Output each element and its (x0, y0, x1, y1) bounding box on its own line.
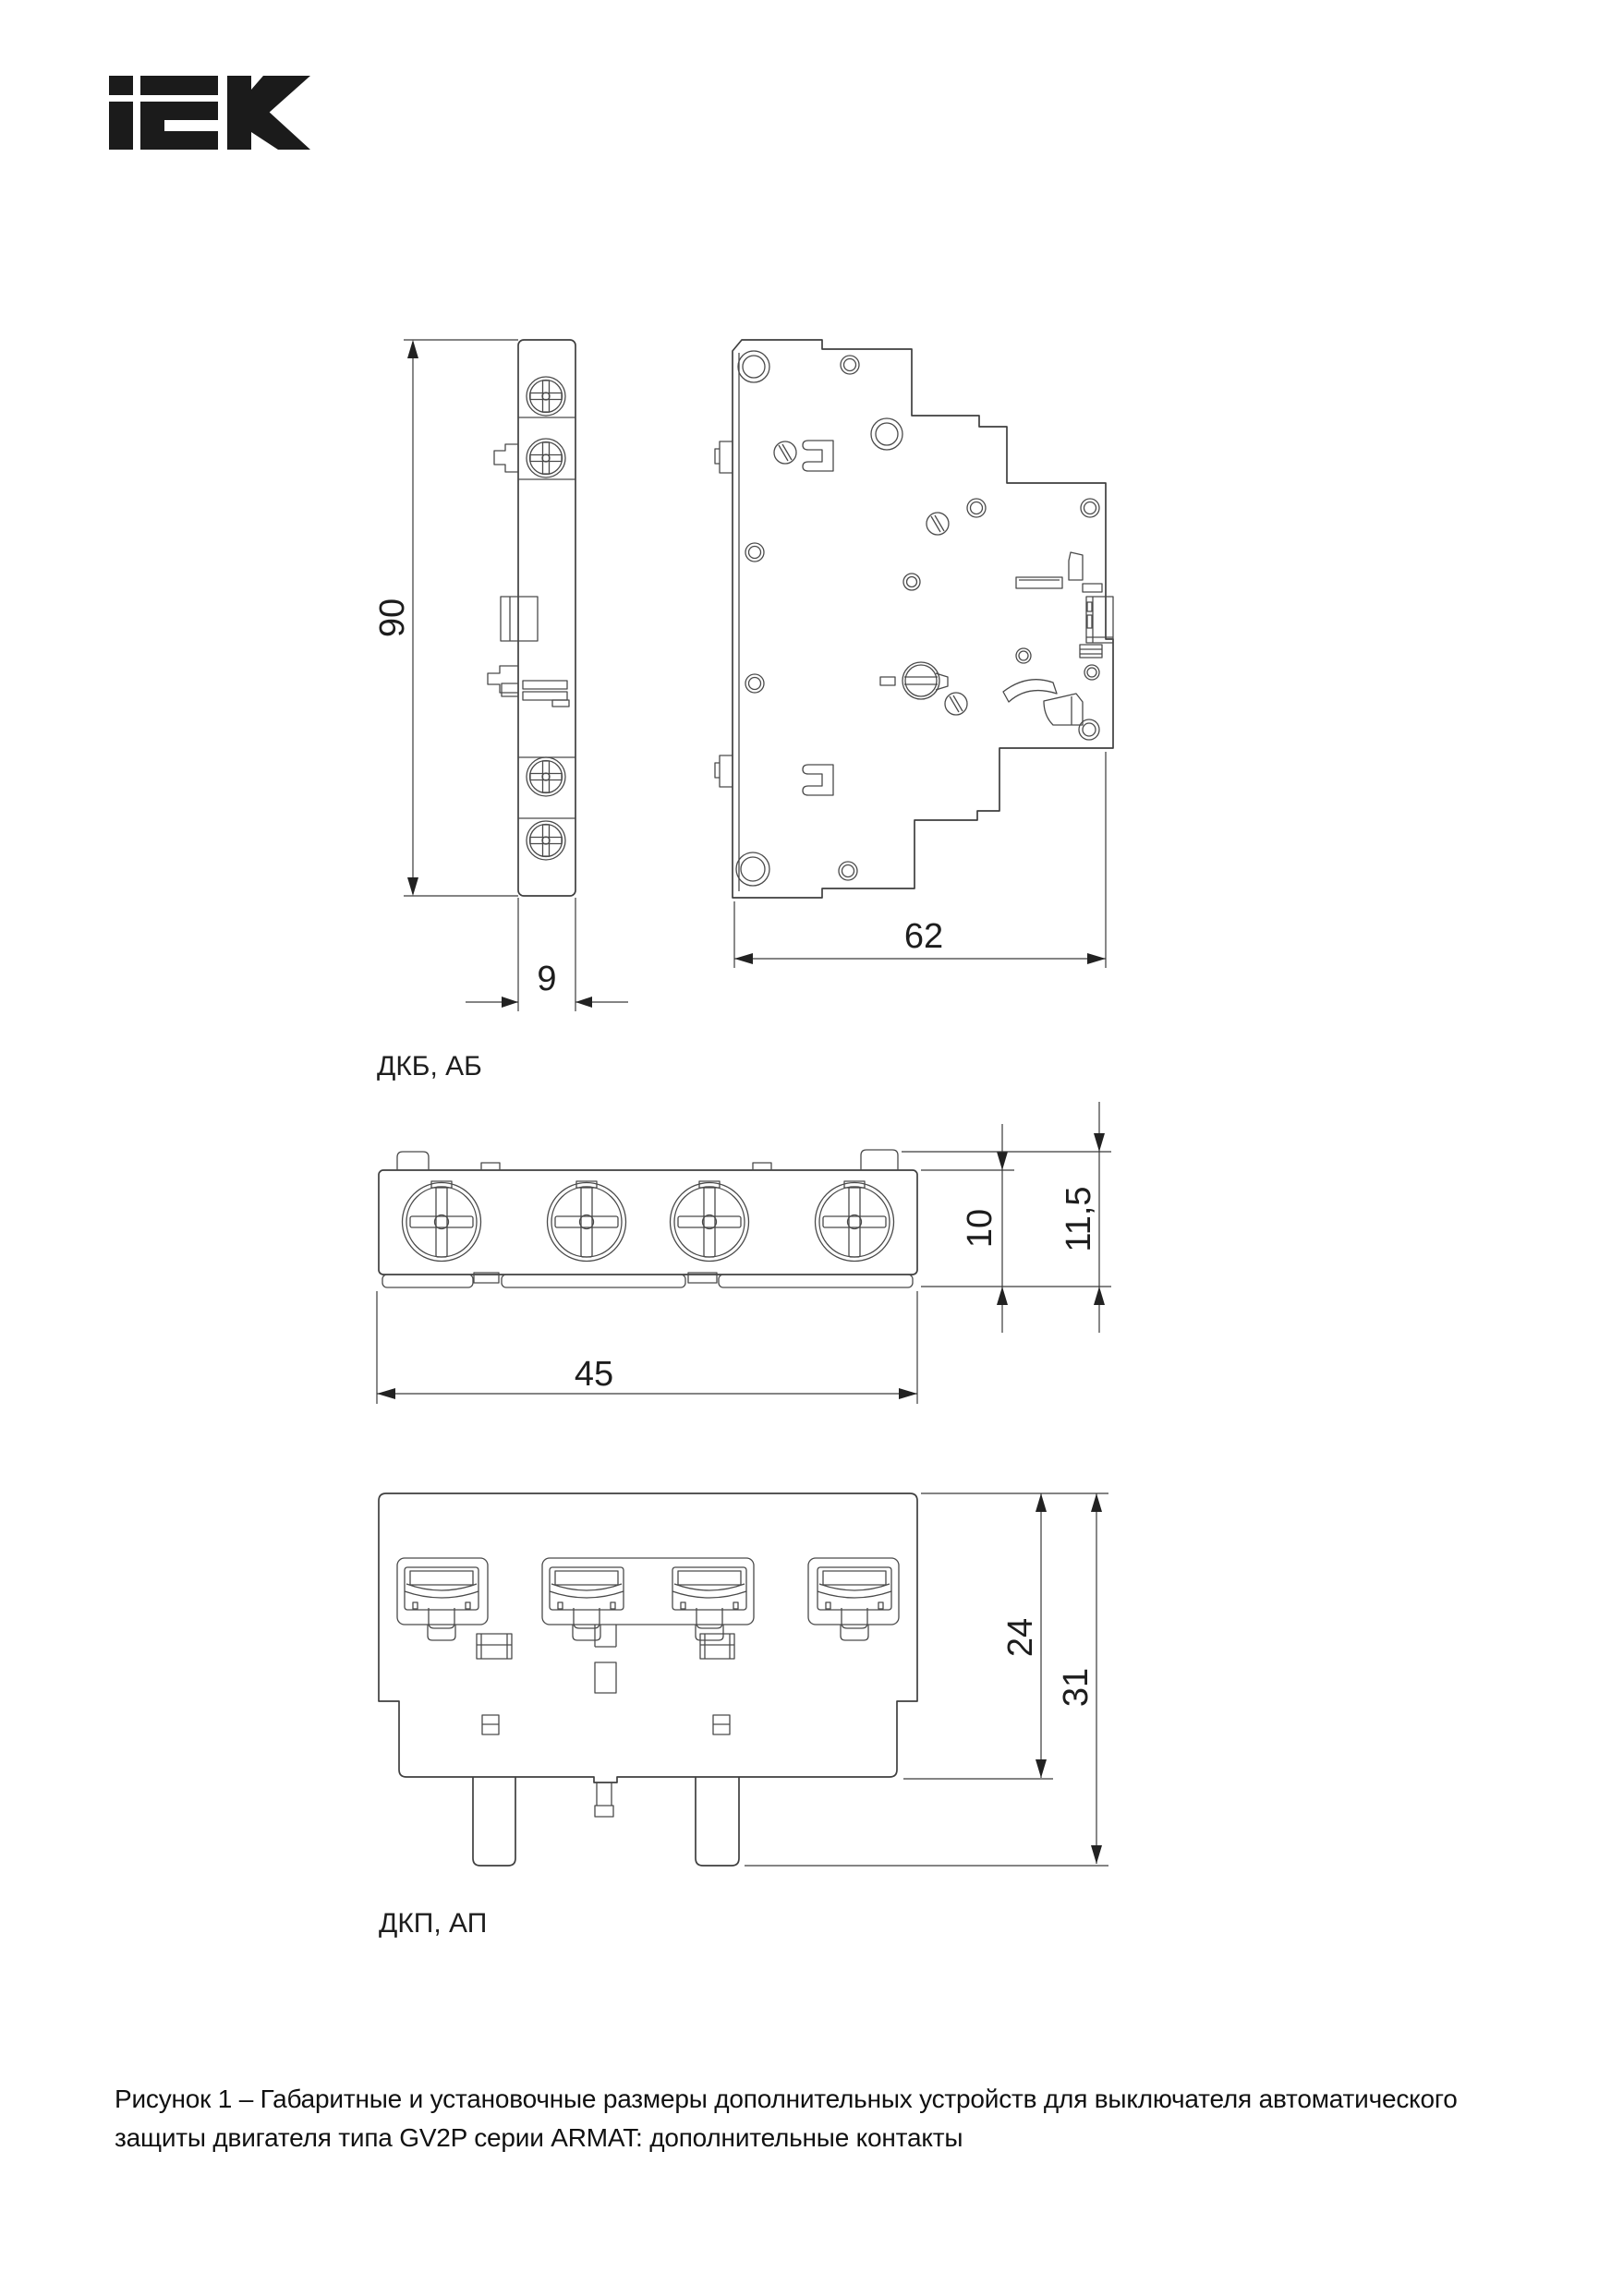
dim-profile-width: 62 (734, 752, 1106, 968)
front-view-drawing: 24 31 ДКП, АП (379, 1493, 1108, 1939)
front-view-label: ДКП, АП (379, 1908, 487, 1939)
dim-side-height-value: 90 (373, 598, 412, 637)
profile-arc-slot (1003, 680, 1057, 702)
document-page: { "logo": { "brand": "IEK", "color": "#1… (0, 0, 1611, 2296)
profile-screw-2 (927, 513, 949, 535)
dim-top-height-total: 11,5 (902, 1102, 1111, 1333)
profile-bracket (1086, 597, 1113, 643)
logo-i-stem (109, 102, 133, 150)
side-screw-3 (527, 757, 565, 796)
logo-k-upper-arm (251, 76, 310, 114)
dim-side-height: 90 (373, 340, 518, 896)
figure-caption-line2: защиты двигателя типа GV2P серии ARMAT: … (115, 2119, 1472, 2157)
profile-grille (1080, 645, 1102, 658)
side-screw-2 (527, 439, 565, 477)
iek-logo (109, 76, 310, 150)
logo-e-body (140, 102, 218, 150)
front-square-right (713, 1715, 730, 1734)
top-bump-right (753, 1163, 771, 1170)
side-screw-1 (527, 377, 565, 416)
profile-screw-3 (945, 693, 967, 715)
front-recess-4 (808, 1558, 899, 1625)
dim-top-height-value: 10 (961, 1209, 999, 1248)
top-body (379, 1170, 917, 1275)
top-screw-3 (671, 1181, 749, 1262)
front-clamp-2 (550, 1567, 624, 1628)
dim-side-width-value: 9 (537, 960, 556, 998)
top-screw-2 (548, 1181, 626, 1262)
figure-caption: Рисунок 1 – Габаритные и установочные ра… (115, 2080, 1472, 2157)
front-leg-right (696, 1777, 739, 1866)
profile-din-tab-upper (715, 441, 733, 473)
dim-front-height-total-value: 31 (1057, 1668, 1096, 1707)
side-left-tab-lower (488, 666, 518, 693)
dim-top-width-value: 45 (575, 1355, 613, 1394)
profile-body-outline (733, 340, 1113, 898)
logo-k-stem (227, 76, 251, 150)
side-left-tab-upper (494, 444, 518, 472)
profile-holes (736, 351, 1099, 886)
dim-front-height: 24 (903, 1493, 1108, 1779)
logo-k-lower-arm (251, 111, 310, 150)
dim-top-height-total-value: 11,5 (1060, 1186, 1098, 1251)
top-bottom-strip (382, 1273, 913, 1287)
side-left-block (501, 597, 538, 641)
side-view-label: ДКБ, АБ (377, 1051, 482, 1082)
front-clamp-3 (672, 1567, 746, 1628)
side-view-drawing: 90 9 ДКБ, АБ (373, 340, 628, 1082)
dim-top-width: 45 (377, 1291, 917, 1404)
top-bump-left (481, 1163, 500, 1170)
top-screw-1 (403, 1181, 481, 1262)
profile-din-tab-lower (715, 755, 733, 787)
dim-profile-width-value: 62 (904, 917, 943, 956)
front-clamp-4 (818, 1567, 891, 1628)
front-center-latch (595, 1625, 616, 1693)
logo-i-dot (109, 76, 133, 95)
front-clamp-1 (405, 1567, 478, 1628)
profile-clip-lower (803, 765, 833, 795)
profile-rotary-selector (880, 662, 948, 699)
profile-clip-upper (803, 441, 833, 471)
front-center-pin (595, 1782, 613, 1817)
technical-drawing-canvas: 90 9 ДКБ, АБ (0, 0, 1611, 2296)
top-tab-right (861, 1150, 898, 1170)
dim-side-width: 9 (466, 898, 628, 1011)
top-view-drawing: 45 10 11,5 (377, 1102, 1111, 1404)
front-square-left (482, 1715, 499, 1734)
dim-front-height-total: 31 (745, 1493, 1108, 1866)
front-body-outline (379, 1493, 917, 1782)
profile-slot-bar (1016, 552, 1102, 592)
profile-screw-1 (774, 441, 796, 464)
front-fuse-left (477, 1634, 512, 1659)
top-tab-left (397, 1152, 429, 1170)
front-fuse-right (700, 1634, 734, 1659)
logo-e-top (140, 76, 218, 95)
profile-view-drawing: 62 (715, 340, 1113, 968)
profile-wedge (1044, 694, 1083, 725)
figure-caption-line1: Рисунок 1 – Габаритные и установочные ра… (115, 2080, 1472, 2119)
dim-front-height-value: 24 (1001, 1618, 1040, 1657)
front-recess-1 (397, 1558, 488, 1625)
side-body (518, 340, 575, 896)
top-screw-4 (816, 1181, 894, 1262)
side-screw-4 (527, 821, 565, 860)
side-latch-detail (502, 681, 569, 707)
front-leg-left (473, 1777, 515, 1866)
